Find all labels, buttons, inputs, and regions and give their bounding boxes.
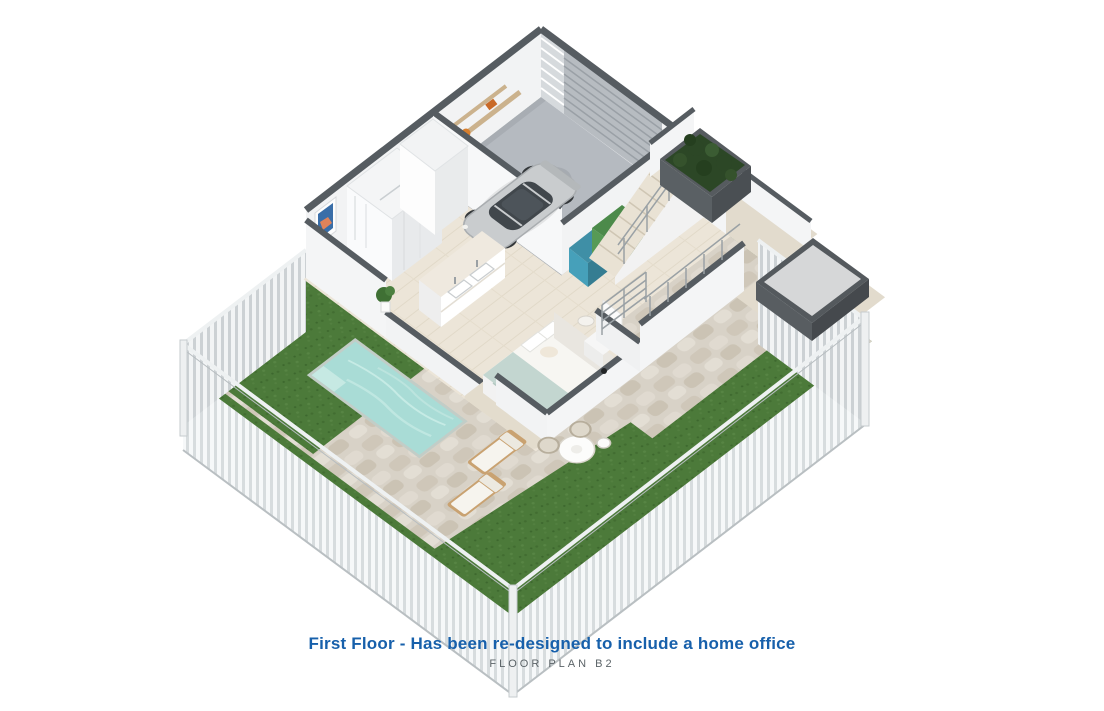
decor-object [601, 368, 607, 374]
fence-post [861, 312, 869, 426]
fence-post [180, 340, 187, 436]
page: First Floor - Has been re-designed to in… [0, 0, 1104, 711]
floorplan-render [0, 0, 1104, 711]
caption-subtitle: FLOOR PLAN B2 [0, 658, 1104, 670]
bolster [540, 347, 558, 358]
caption-title: First Floor - Has been re-designed to in… [0, 634, 1104, 654]
side-table [578, 316, 594, 326]
caption: First Floor - Has been re-designed to in… [0, 634, 1104, 670]
